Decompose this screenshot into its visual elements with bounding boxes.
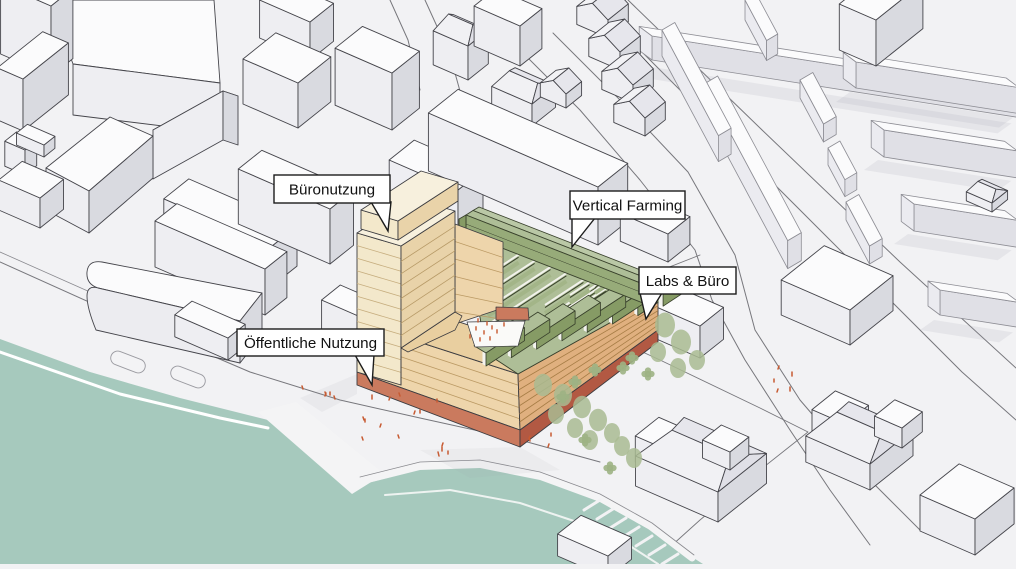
svg-text:Öffentliche Nutzung: Öffentliche Nutzung [244, 334, 377, 352]
svg-text:Labs & Büro: Labs & Büro [646, 273, 730, 290]
svg-text:Büronutzung: Büronutzung [289, 182, 375, 199]
svg-text:Vertical Farming: Vertical Farming [573, 198, 683, 215]
